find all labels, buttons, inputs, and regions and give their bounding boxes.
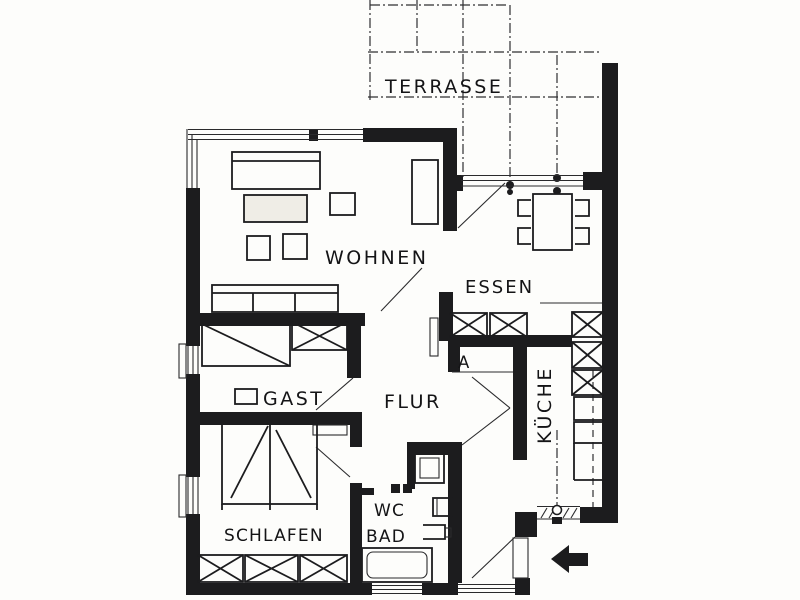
bathtub-icon <box>362 548 432 582</box>
room-label-terrasse: TERRASSE <box>384 76 503 98</box>
floor-plan-page: TERRASSE WOHNEN ESSEN GAST FLUR A KÜCHE … <box>0 0 800 600</box>
room-label-wc: WC <box>374 501 405 521</box>
room-label-wohnen: WOHNEN <box>325 247 428 269</box>
room-label-kueche: KÜCHE <box>533 366 556 444</box>
furniture-wohnen <box>212 152 438 312</box>
entrance-arrow-icon <box>551 545 588 573</box>
floor-plan-drawing: TERRASSE WOHNEN ESSEN GAST FLUR A KÜCHE … <box>0 0 800 600</box>
room-label-essen: ESSEN <box>465 277 534 298</box>
room-label-bad: BAD <box>366 527 406 547</box>
room-label-abstellraum: A <box>458 353 470 372</box>
room-label-gast: GAST <box>263 388 324 410</box>
room-label-flur: FLUR <box>384 391 442 413</box>
furniture-essen <box>518 194 589 250</box>
room-label-schlafen: SCHLAFEN <box>224 526 324 546</box>
furniture-schlafen <box>198 424 347 582</box>
gast-sideboard-icon <box>235 389 257 404</box>
sink-icon <box>423 525 445 539</box>
